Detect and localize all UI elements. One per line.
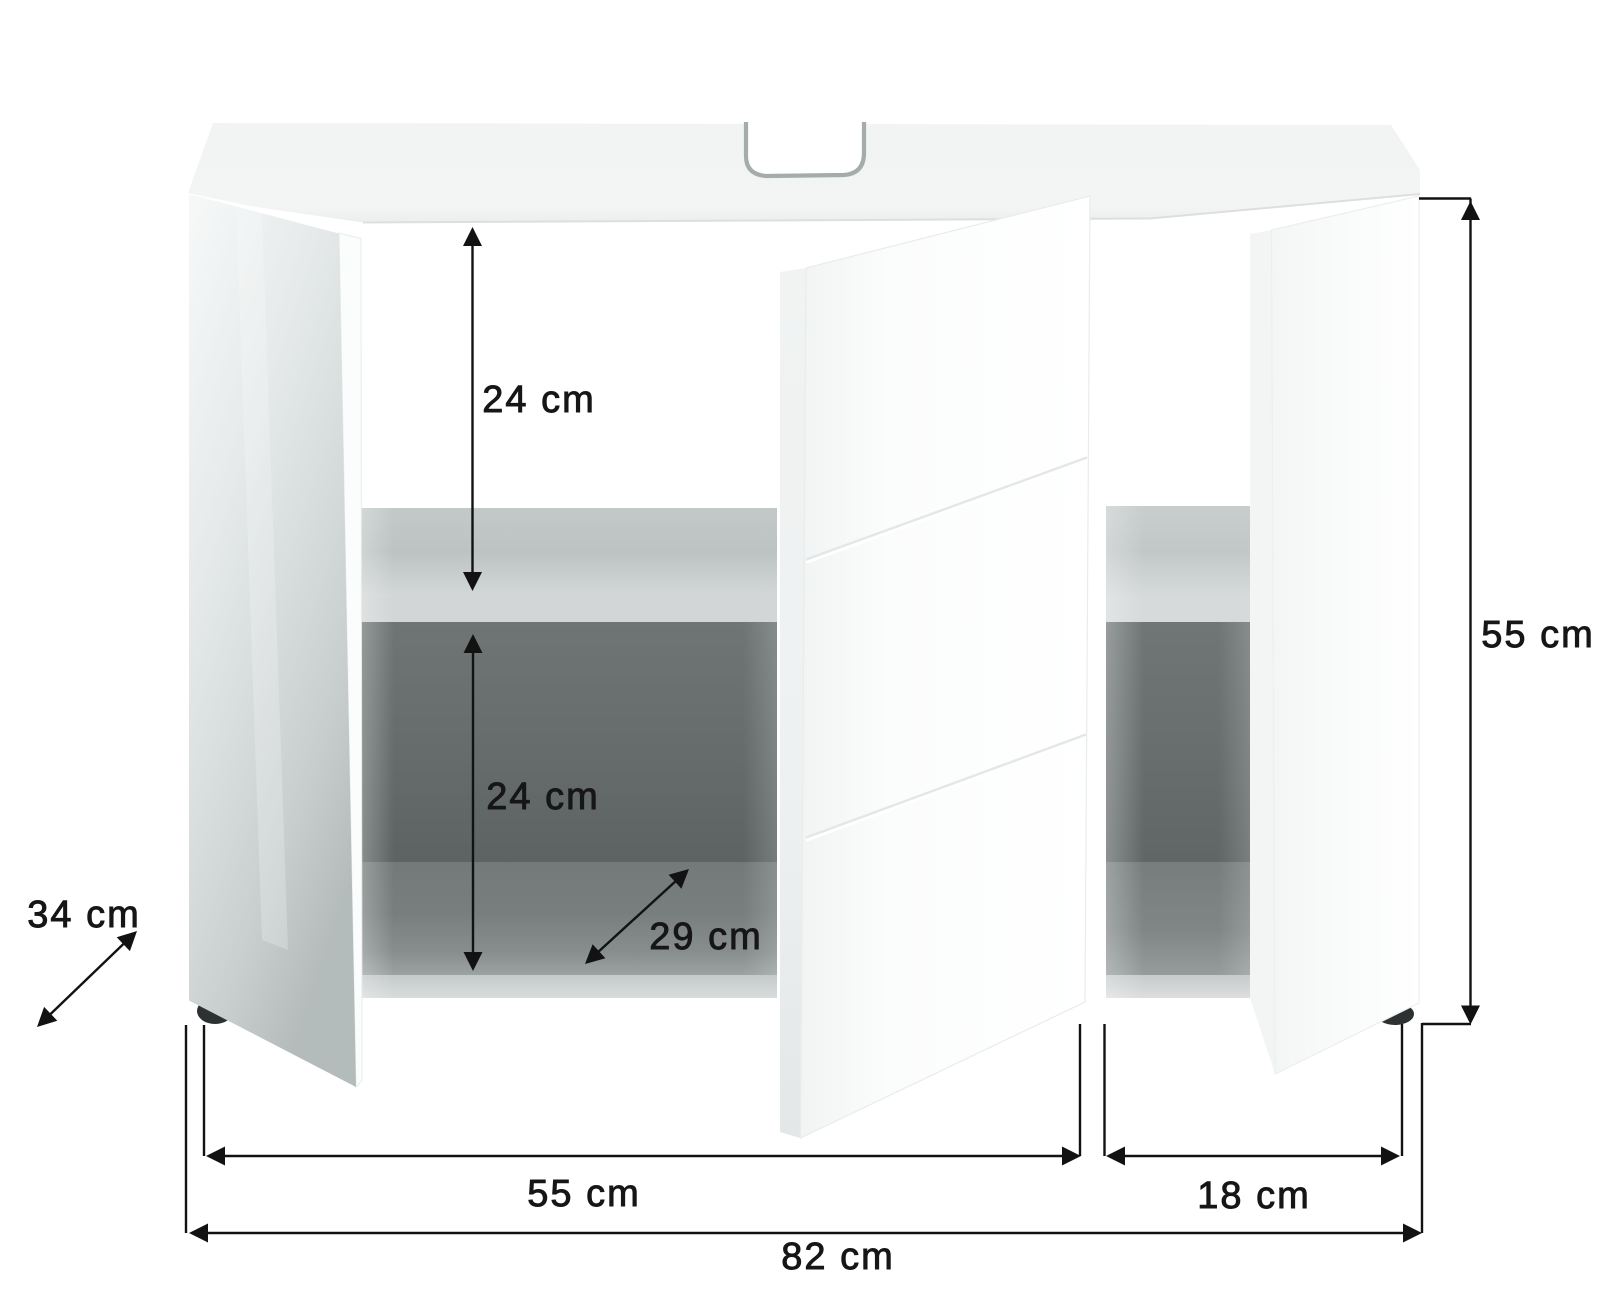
svg-text:82 cm: 82 cm	[781, 1236, 894, 1278]
svg-text:55 cm: 55 cm	[527, 1173, 640, 1215]
svg-text:18 cm: 18 cm	[1197, 1175, 1310, 1217]
svg-text:55 cm: 55 cm	[1481, 614, 1594, 656]
svg-text:34 cm: 34 cm	[27, 894, 140, 936]
svg-text:24 cm: 24 cm	[482, 379, 595, 421]
svg-text:29 cm: 29 cm	[649, 916, 762, 958]
svg-text:24 cm: 24 cm	[486, 776, 599, 818]
